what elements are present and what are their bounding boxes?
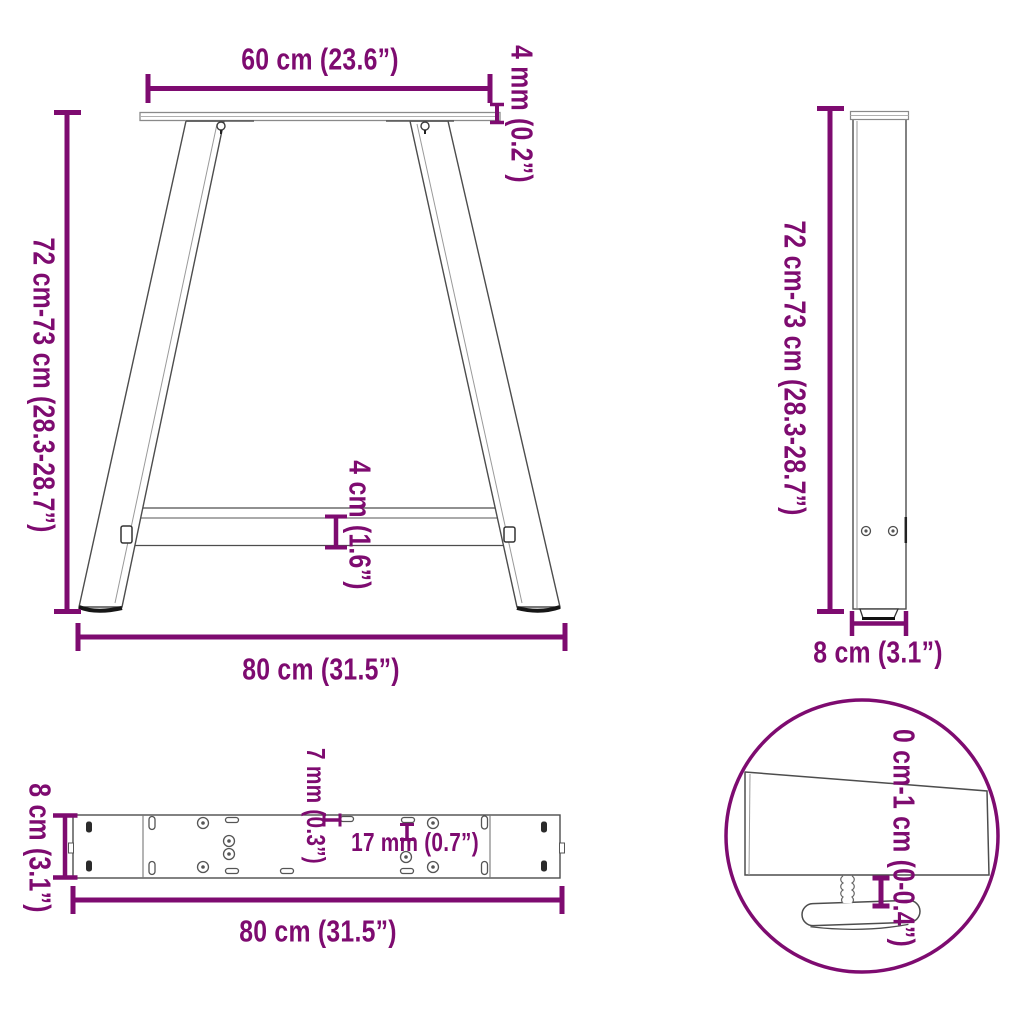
leg-bottom-section [745, 772, 989, 875]
profile-foot [860, 609, 898, 619]
front-bottom-width-label: 80 cm (31.5”) [242, 654, 400, 685]
left-leg [79, 121, 224, 611]
top-length-label: 80 cm (31.5”) [239, 916, 397, 947]
side-height-label: 72 cm-73 cm (28.3-28.7”) [780, 220, 811, 515]
right-bracket [504, 527, 515, 542]
dimension-line-80cm-front [78, 623, 565, 651]
front-view [54, 74, 565, 651]
dimension-line-height-side [817, 108, 844, 612]
detail-art [745, 772, 989, 931]
front-plate-thickness-label: 4 mm (0.2”) [507, 45, 538, 183]
detail-foot-adjustment-label: 0 cm-1 cm (0-0.4”) [889, 729, 920, 947]
right-screw [421, 122, 429, 130]
front-height-label: 72 cm-73 cm (28.3-28.7”) [29, 237, 60, 532]
side-depth-label: 8 cm (3.1”) [813, 637, 942, 668]
left-bracket [121, 526, 132, 543]
detail-view [726, 700, 998, 972]
front-top-width-label: 60 cm (23.6”) [241, 44, 399, 75]
front-crossbar-height-label: 4 cm (1.6”) [345, 460, 376, 589]
dimension-line-60cm [148, 74, 490, 103]
crossbar [110, 508, 536, 546]
product-dimension-diagram: 60 cm (23.6”) 4 mm (0.2”) 72 cm-73 cm (2… [0, 0, 1024, 1024]
right-leg [410, 121, 560, 611]
screw-thread [842, 876, 853, 903]
dimension-line-80cm-top [73, 886, 562, 914]
side-view [817, 108, 909, 636]
top-slot-width-label: 7 mm (0.3”) [303, 748, 329, 864]
leg-profile [853, 119, 906, 609]
top-hole-diameter-label: 17 mm (0.7”) [351, 829, 479, 855]
top-depth-label: 8 cm (3.1”) [25, 783, 56, 912]
left-screw [217, 122, 225, 130]
